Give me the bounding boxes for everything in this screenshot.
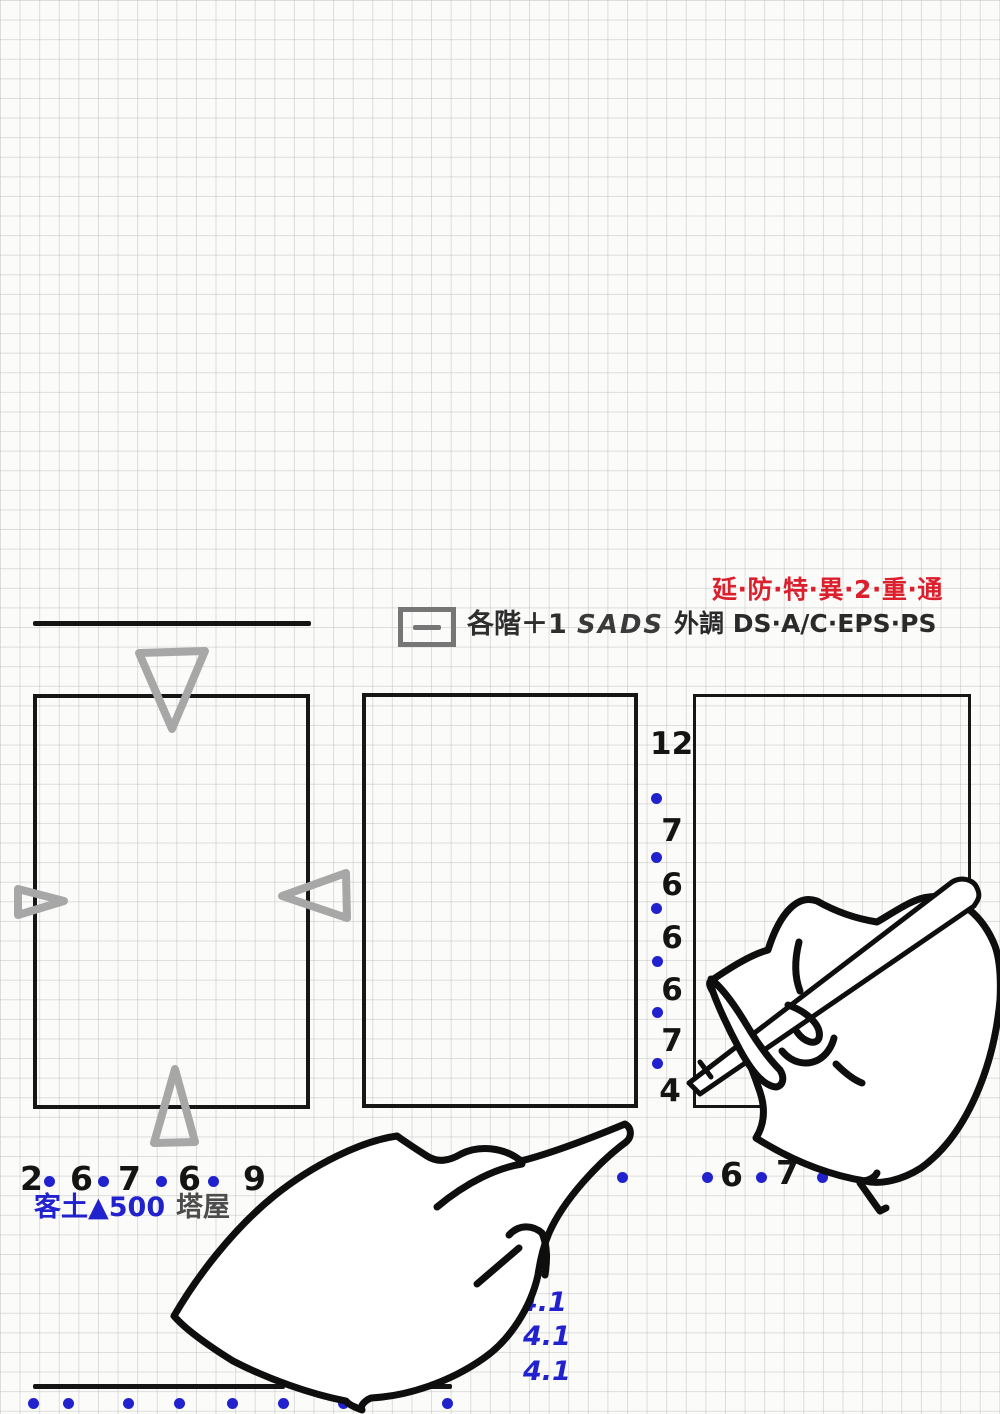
dim-value: 9 bbox=[243, 1162, 267, 1195]
soil-note: 客土▲500 bbox=[34, 1194, 165, 1221]
blue-dot bbox=[652, 1007, 663, 1018]
blue-dot bbox=[208, 1176, 219, 1187]
blue-dot bbox=[28, 1398, 39, 1409]
legend-dash bbox=[413, 625, 441, 630]
height-value: 4.1 bbox=[523, 1323, 571, 1350]
blue-dot bbox=[817, 1172, 828, 1183]
blue-dot bbox=[651, 852, 662, 863]
dim-value: 6 bbox=[652, 870, 692, 901]
blue-dot bbox=[617, 1172, 628, 1183]
blue-dot bbox=[652, 1058, 663, 1069]
sketch-sheet: 延·防·特·異·2·重·通 各階＋1 SADS 外調 DS·A/C·EPS·PS… bbox=[0, 0, 1000, 1414]
dim-value: 7 bbox=[652, 816, 692, 847]
dim-value: 6 bbox=[720, 1158, 744, 1191]
plan-rect-middle bbox=[362, 693, 638, 1108]
dim-value: 7 bbox=[652, 1026, 692, 1057]
blue-dot bbox=[756, 1172, 767, 1183]
top-rule-line bbox=[33, 621, 311, 626]
blue-dot bbox=[44, 1176, 55, 1187]
blue-dot bbox=[63, 1398, 74, 1409]
dim-value: 6 bbox=[178, 1162, 202, 1195]
dim-value: 12 bbox=[650, 729, 690, 760]
dim-value: 2 bbox=[20, 1162, 44, 1195]
blue-dot bbox=[442, 1398, 453, 1409]
cuff-stroke bbox=[860, 1183, 886, 1211]
blue-dot bbox=[702, 1172, 713, 1183]
dim-value: 6 bbox=[652, 923, 692, 954]
dim-value: 7 bbox=[776, 1156, 800, 1189]
bottom-rule-line-2 bbox=[418, 1384, 452, 1389]
height-value: 4.1 bbox=[519, 1289, 567, 1316]
outdoor-note: 外調 DS·A/C·EPS·PS bbox=[674, 611, 937, 636]
red-note: 延·防·特·異·2·重·通 bbox=[712, 577, 943, 602]
plan-rect-left bbox=[33, 694, 310, 1109]
blue-dot bbox=[156, 1176, 167, 1187]
blue-dot bbox=[338, 1398, 349, 1409]
height-value: 4.1 bbox=[523, 1358, 571, 1385]
dim-value: 6 bbox=[70, 1162, 94, 1195]
legend-box bbox=[398, 607, 456, 647]
blue-dot bbox=[98, 1176, 109, 1187]
blue-dot bbox=[652, 956, 663, 967]
duct-note: SADS bbox=[577, 612, 664, 638]
plan-rect-right bbox=[693, 694, 971, 1108]
blue-dot bbox=[651, 793, 662, 804]
dim-value: 4 bbox=[650, 1076, 690, 1107]
blue-dot bbox=[174, 1398, 185, 1409]
blue-dot bbox=[227, 1398, 238, 1409]
cuff-nub bbox=[864, 1173, 877, 1181]
blue-dot bbox=[651, 903, 662, 914]
floor-note: 各階＋1 bbox=[467, 611, 567, 638]
bottom-rule-line bbox=[33, 1384, 285, 1389]
tower-note: 塔屋 bbox=[176, 1194, 230, 1221]
blue-dot bbox=[278, 1398, 289, 1409]
dim-value: 6 bbox=[652, 975, 692, 1006]
dim-value: 7 bbox=[118, 1162, 142, 1195]
blue-dot bbox=[123, 1398, 134, 1409]
